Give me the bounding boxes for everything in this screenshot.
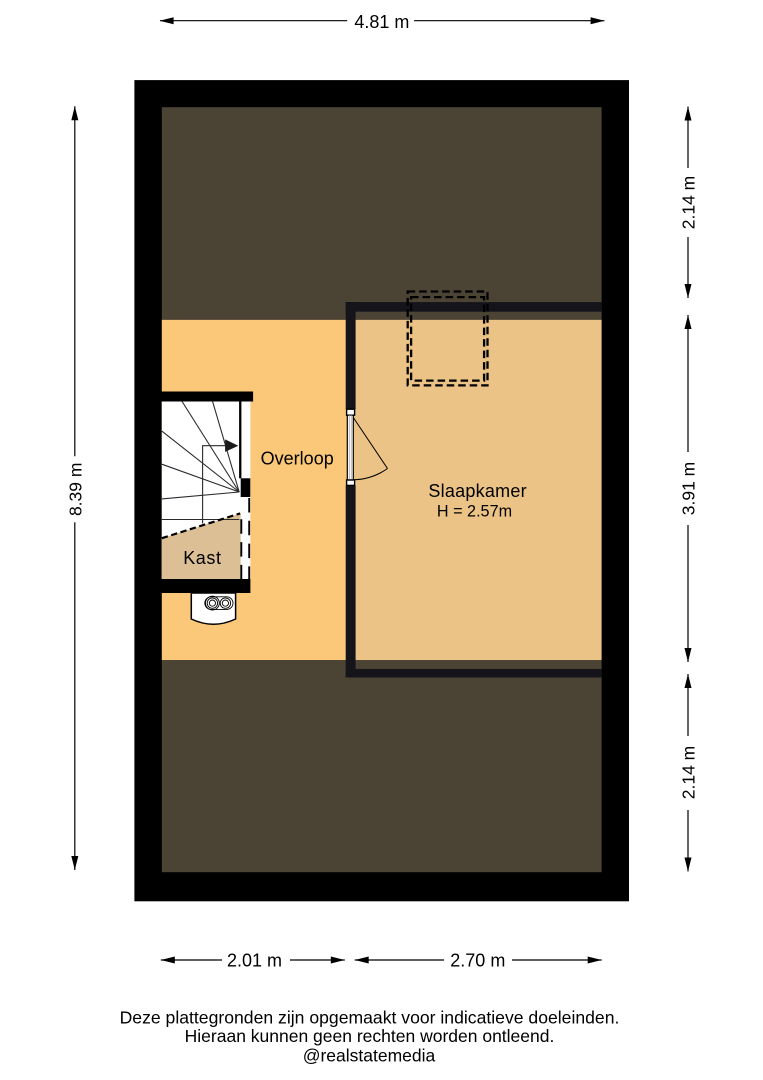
svg-text:2.01 m: 2.01 m: [227, 950, 282, 970]
svg-text:Kast: Kast: [183, 548, 221, 568]
svg-text:2.14 m: 2.14 m: [679, 176, 699, 230]
svg-text:Deze plattegronden zijn opgema: Deze plattegronden zijn opgemaakt voor i…: [120, 1008, 620, 1028]
svg-text:2.14 m: 2.14 m: [679, 746, 699, 800]
svg-text:H = 2.57m: H = 2.57m: [437, 502, 512, 520]
svg-text:3.91 m: 3.91 m: [679, 462, 699, 516]
svg-text:8.39 m: 8.39 m: [66, 463, 86, 517]
svg-text:Hieraan kunnen geen rechten wo: Hieraan kunnen geen rechten worden ontle…: [185, 1026, 555, 1046]
svg-text:Overloop: Overloop: [261, 449, 334, 469]
svg-text:Slaapkamer: Slaapkamer: [428, 481, 527, 501]
svg-text:2.70 m: 2.70 m: [450, 950, 505, 970]
svg-text:4.81 m: 4.81 m: [354, 12, 409, 32]
svg-text:@realstatemedia: @realstatemedia: [303, 1046, 436, 1066]
